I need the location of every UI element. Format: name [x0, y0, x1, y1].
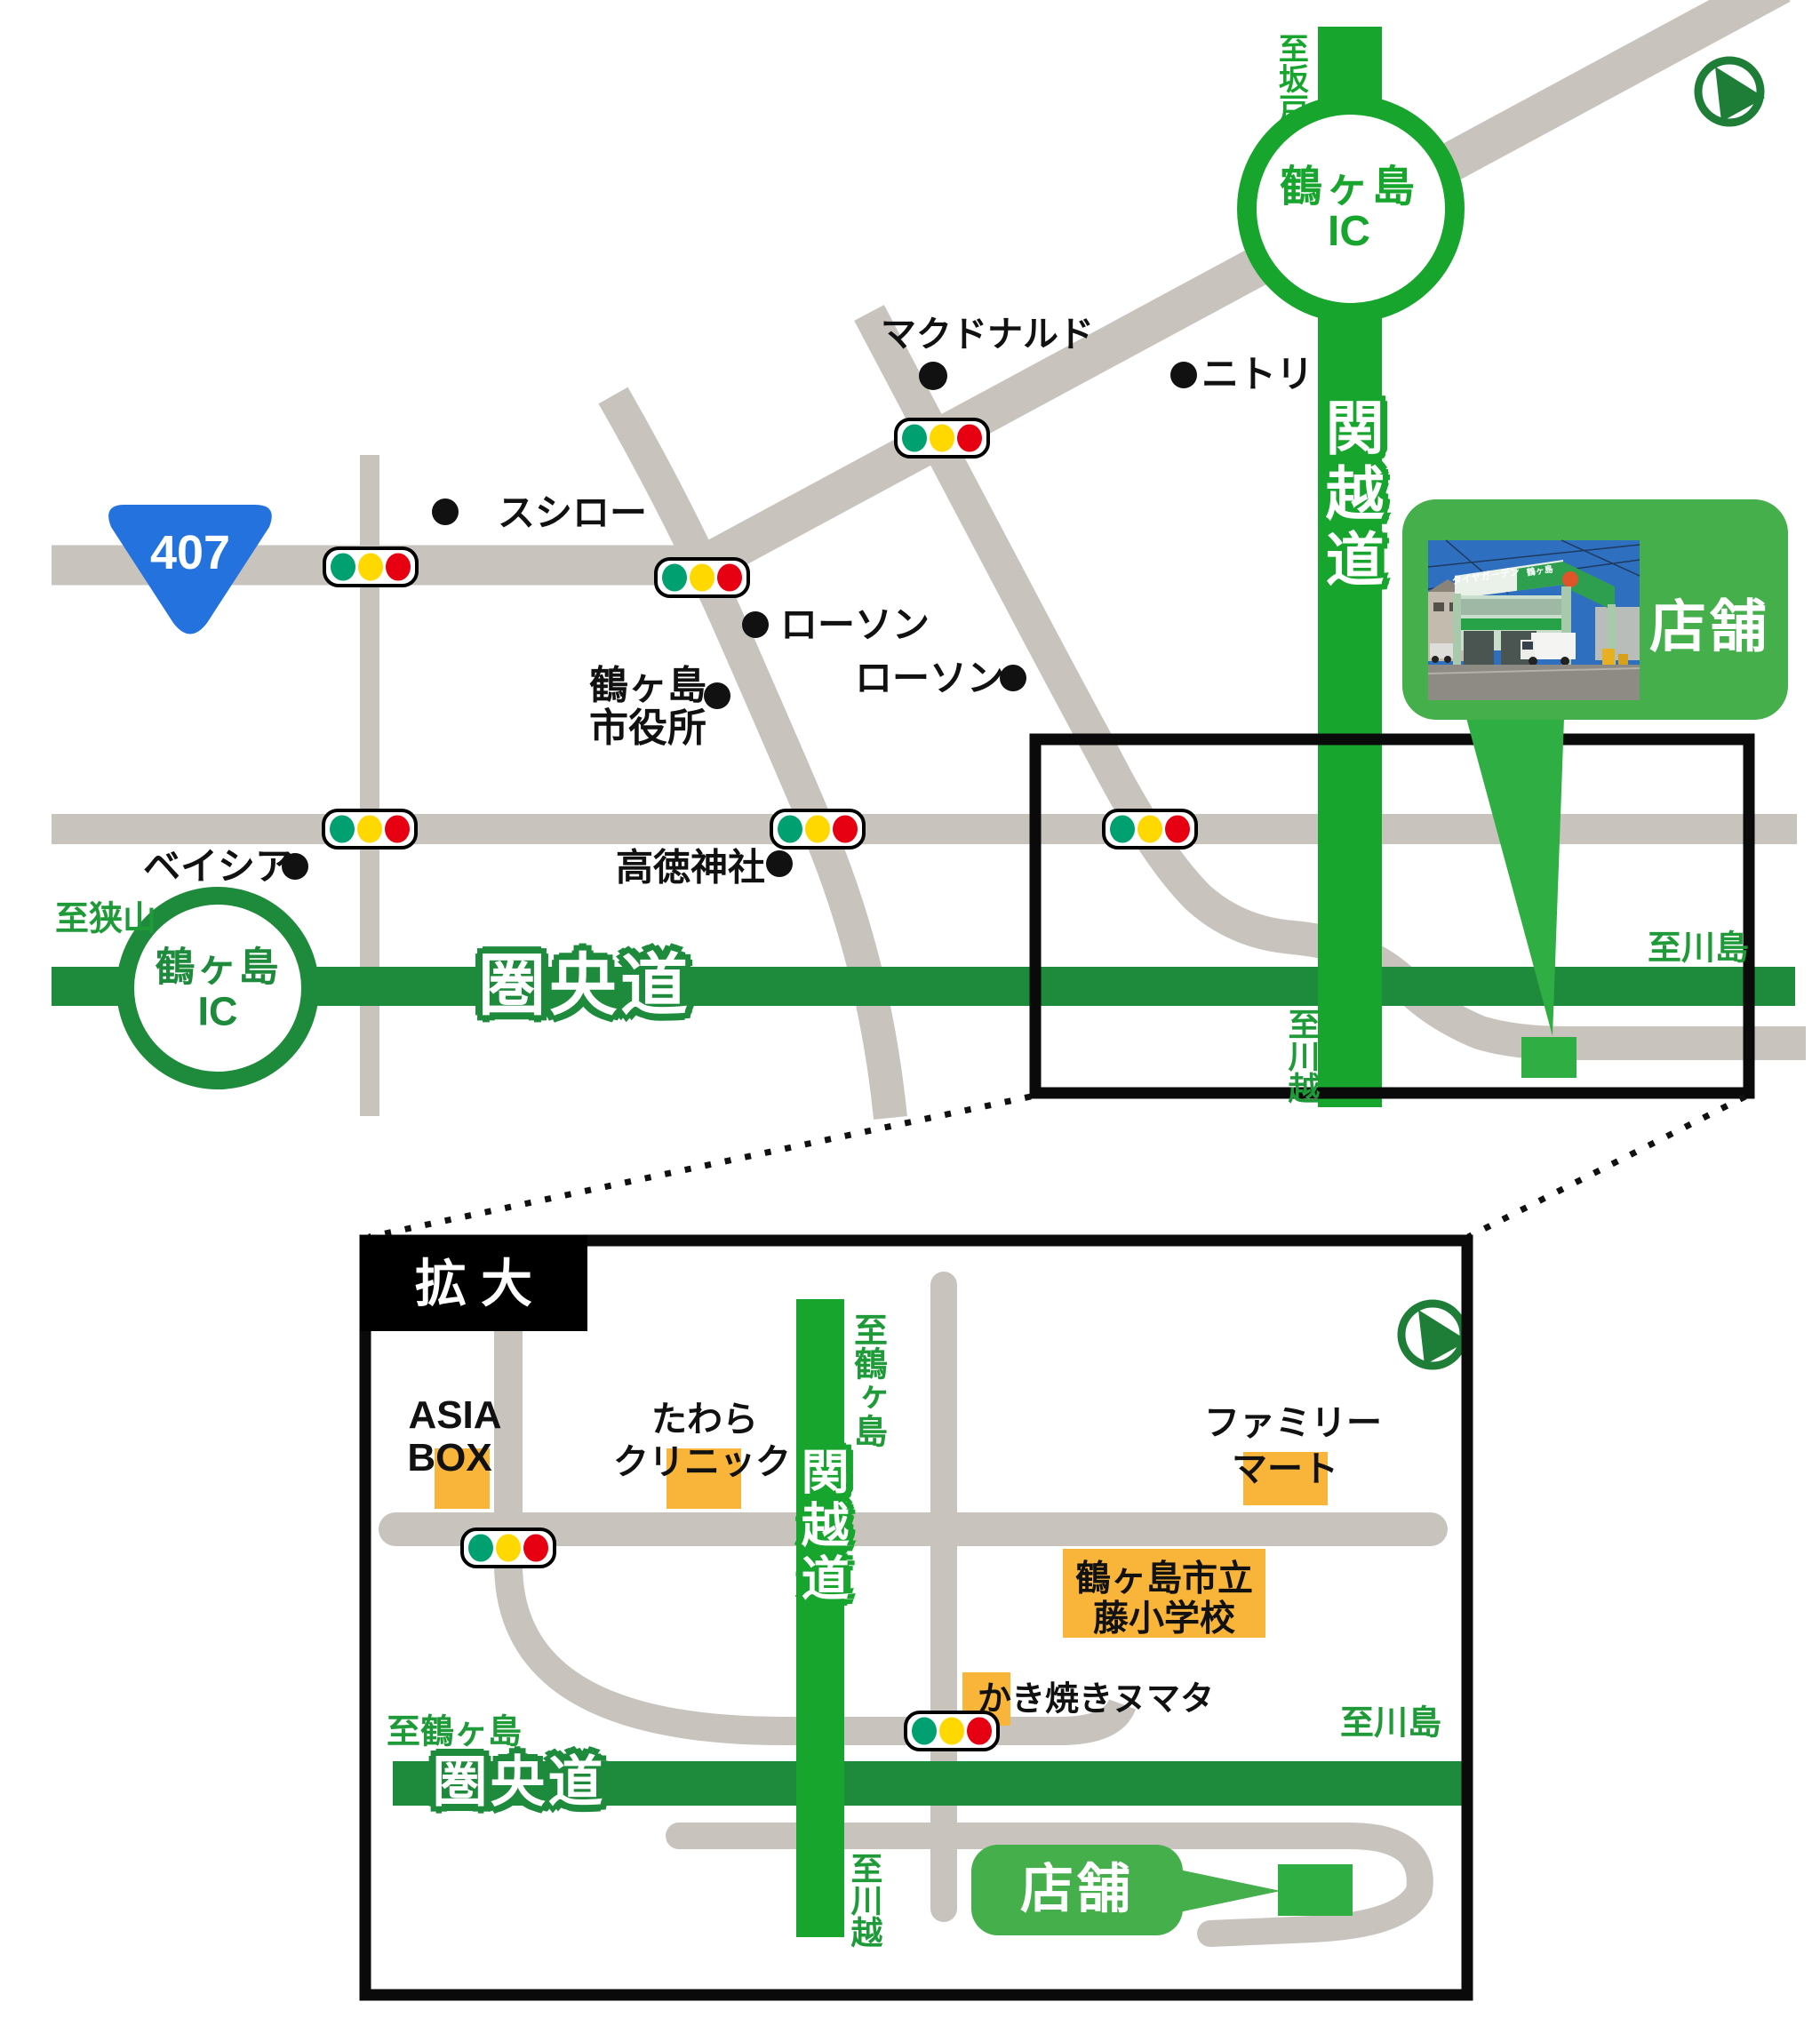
poi-dot [766, 850, 793, 877]
school-line2: 藤小学校 [1093, 1599, 1235, 1638]
traffic-light-icon [656, 559, 748, 596]
road-diagonal-from-ic [700, 0, 1781, 567]
inset-gray-roads [395, 1285, 1431, 1934]
poi-dot [919, 362, 947, 390]
lawson-lower-label: ローソン [855, 658, 1004, 698]
route-407-number: 407 [150, 527, 230, 578]
lawson-upper-label: ローソン [780, 604, 930, 644]
kanetsudo-label-main: 関越道 [1318, 397, 1381, 594]
tawara-line1: たわら [651, 1400, 758, 1439]
store-photo [1428, 540, 1640, 700]
map-canvas [0, 0, 1820, 2018]
access-map: 至坂戸 鶴ヶ島 IC 関越道 マクドナルド ニトリ スシロー 407 ローソン … [0, 0, 1820, 2018]
traffic-light-icon [323, 810, 416, 848]
cityhall-line1: 鶴ヶ島 [589, 665, 706, 707]
store-location-marker-main [1521, 1037, 1577, 1078]
inset-title: 拡 大 [415, 1257, 532, 1313]
store-label-main: 店舗 [1649, 596, 1770, 658]
dotted-connector-left [369, 1097, 1031, 1237]
compass-icon [1401, 1304, 1468, 1366]
ic-top-name: 鶴ヶ島 [1280, 164, 1418, 211]
traffic-light-icon [1104, 810, 1196, 848]
ic-left-name: 鶴ヶ島 [155, 946, 280, 990]
poi-dot [1170, 362, 1197, 388]
photo-back-wall [1595, 607, 1640, 660]
nitori-label: ニトリ [1201, 354, 1313, 394]
asia-box-line1: ASIA [408, 1394, 501, 1437]
mcdonalds-label: マクドナルド [881, 315, 1094, 354]
familymart-line2: マート [1232, 1450, 1338, 1488]
tawara-line2: クリニック [613, 1443, 791, 1481]
kanetsudo-label-inset: 関越道 [794, 1447, 846, 1607]
traffic-light-icon [324, 548, 417, 586]
kenodo-label-inset: 圏央道 [432, 1754, 605, 1814]
compass-icon [1698, 60, 1765, 123]
traffic-light-icon [896, 419, 988, 457]
store-label-inset: 店舗 [1020, 1862, 1134, 1919]
kotoku-shrine-label: 高徳神社 [616, 847, 765, 887]
inset-to-tsurugashima-top: 至鶴ヶ島 [848, 1312, 884, 1448]
to-kawagoe-label-main: 至川越 [1284, 1008, 1319, 1104]
store-location-marker-inset [1278, 1864, 1353, 1916]
inset-to-tsurugashima-bottom: 至鶴ヶ島 [387, 1714, 522, 1751]
dotted-connector-right [1468, 1097, 1745, 1237]
inset-to-kawajima: 至川島 [1340, 1705, 1441, 1742]
photo-banner [1460, 618, 1565, 630]
ic-top-ic: IC [1328, 209, 1370, 255]
school-line1: 鶴ヶ島市立 [1075, 1559, 1253, 1598]
poi-dot [742, 611, 769, 638]
ic-left-ic: IC [198, 991, 238, 1034]
sushiro-label: スシロー [498, 492, 647, 532]
inset-kanetsu-road [796, 1299, 844, 1937]
to-sayama-label: 至狭山 [55, 901, 156, 937]
kakiyaki-label: かき焼きヌマタ [978, 1681, 1214, 1718]
beisia-label: ベイシア [143, 846, 292, 886]
familymart-line1: ファミリー [1204, 1404, 1382, 1442]
poi-dot [704, 682, 730, 709]
to-kawajima-label-main: 至川島 [1648, 930, 1749, 967]
traffic-light-icon [771, 810, 864, 848]
cityhall-line2: 市役所 [589, 707, 706, 750]
to-sakado-label: 至坂戸 [1274, 33, 1307, 124]
traffic-light-icon [462, 1529, 555, 1567]
kenodo-label-main: 圏央道 [478, 950, 691, 1023]
inset-to-kawagoe: 至川越 [847, 1852, 882, 1948]
poi-dot [432, 499, 459, 525]
inset-callout-arrow [1175, 1869, 1281, 1913]
asia-box-line2: BOX [407, 1437, 491, 1480]
